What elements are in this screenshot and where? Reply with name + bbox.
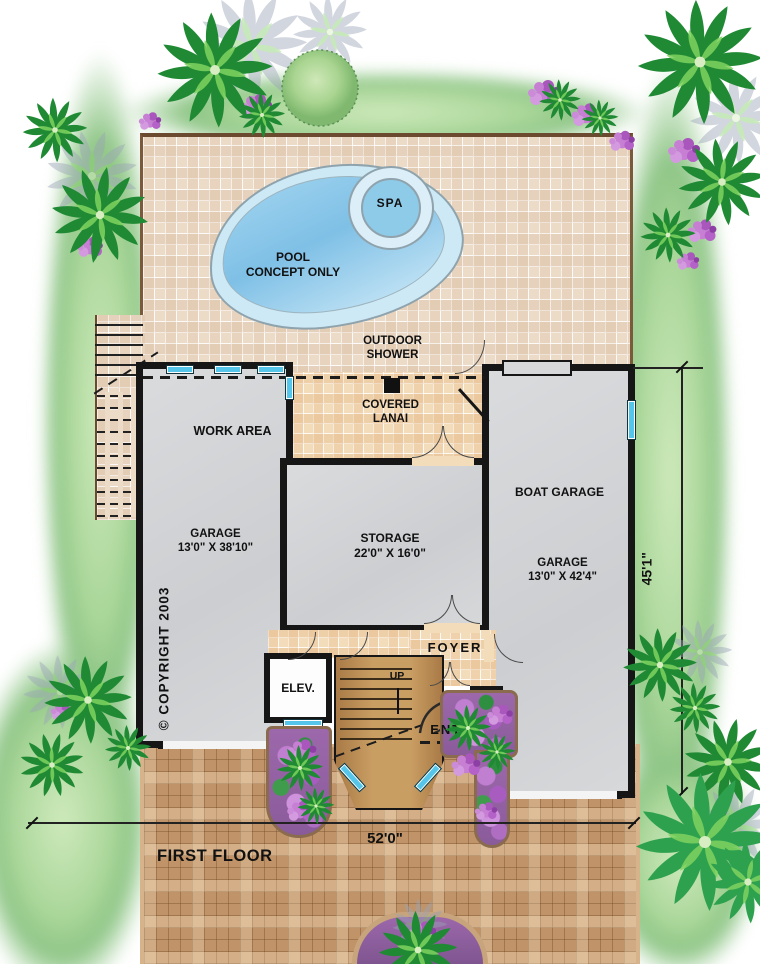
entry-label: ENTRY [414, 722, 500, 738]
lanai-open-edge [143, 376, 484, 379]
elevator-label: ELEV. [268, 681, 328, 696]
garage-right-label: GARAGE 13'0" X 42'4" [490, 556, 635, 585]
dimension-width-label: 52'0" [345, 830, 425, 849]
boat-garage-label: BOAT GARAGE [487, 485, 632, 500]
outdoor-shower-fixture [384, 378, 400, 393]
planting-bed-right-finger [474, 750, 510, 848]
pool-label: POOL CONCEPT ONLY [218, 250, 368, 280]
garage-window-2 [214, 365, 242, 374]
copyright-label: © COPYRIGHT 2003 [157, 573, 174, 743]
lawn-bottom-left [0, 640, 155, 964]
dimension-line-depth [681, 368, 683, 794]
storage-label: STORAGE 22'0" X 16'0" [310, 531, 470, 561]
dimension-depth-label: 45'1" [638, 537, 656, 601]
garage-door-opening-boat [504, 791, 622, 799]
spa-label: SPA [362, 196, 418, 211]
floor-plan: SPA POOL CONCEPT ONLY ELEV. UP ENTRY [0, 0, 760, 964]
covered-lanai-label: COVERED LANAI [328, 398, 453, 427]
foyer-label: FOYER [415, 640, 495, 656]
up-label: UP [382, 670, 412, 683]
work-area-label: WORK AREA [160, 424, 305, 440]
up-arrow [397, 688, 399, 714]
garage-door-opening-left [158, 741, 282, 749]
garage-window-3 [257, 365, 285, 374]
outdoor-shower-label: OUTDOOR SHOWER [330, 334, 455, 363]
first-floor-title: FIRST FLOOR [157, 846, 297, 867]
work-area-side-window [285, 376, 294, 400]
dimension-ext-line [633, 367, 703, 369]
boat-garage-side-window [627, 400, 636, 440]
garage-left-label: GARAGE 13'0" X 38'10" [143, 527, 288, 556]
lanai-storage-door-gap [412, 456, 474, 466]
dimension-line-width [28, 822, 636, 824]
boat-garage-deck-opening [502, 360, 572, 376]
garage-window-1 [166, 365, 194, 374]
storage-foyer-door-gap [424, 623, 480, 633]
